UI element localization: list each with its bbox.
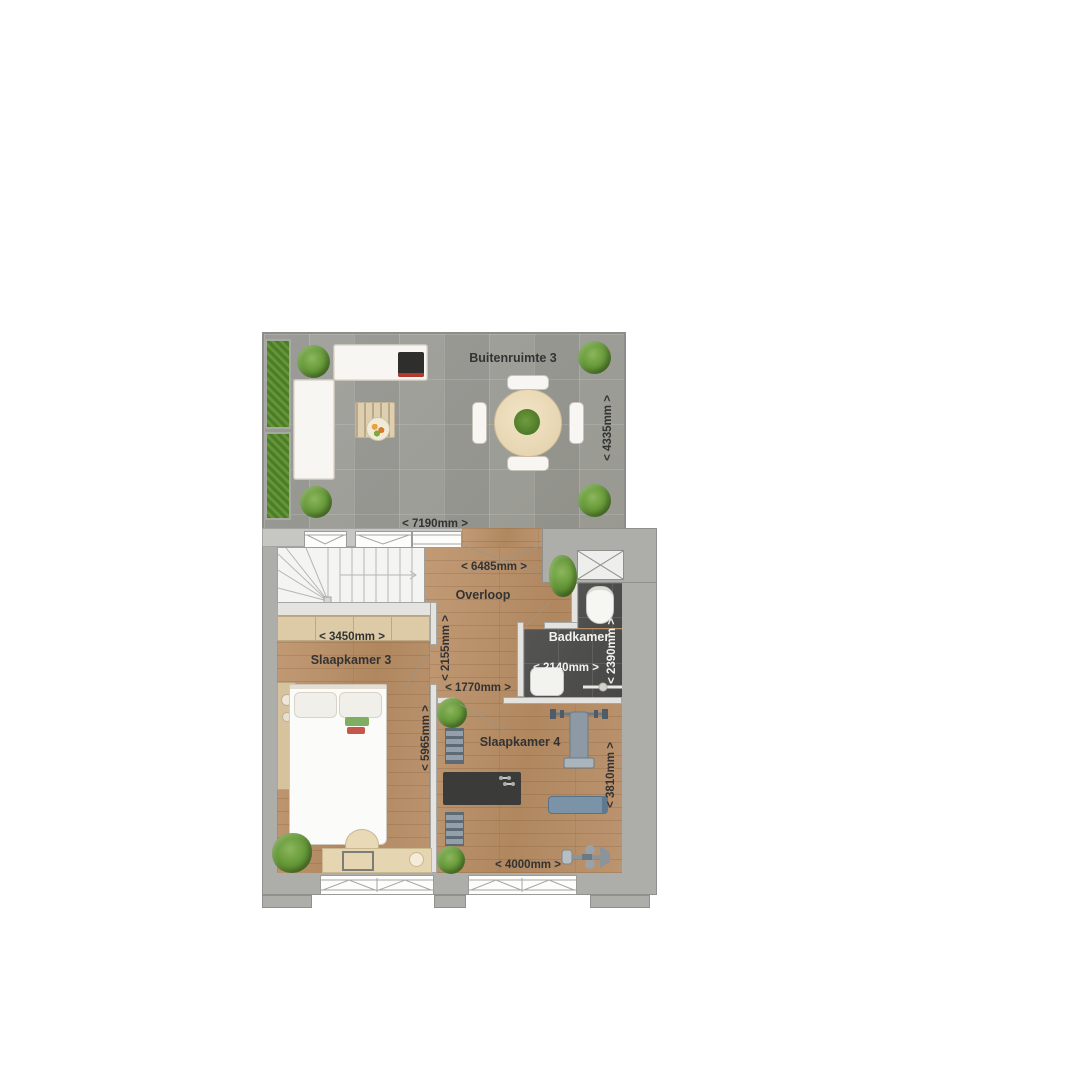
room-label-slaapkamer4: Slaapkamer 4 <box>480 735 561 749</box>
floor-plan: Buitenruimte 3 < 7190mm > < 4335mm > < 6… <box>0 0 1080 1080</box>
dim-overloop-depth: < 2155mm > <box>440 615 452 681</box>
dim-overloop-passage: < 1770mm > <box>445 682 511 694</box>
dim-buitenruimte-depth: < 4335mm > <box>602 395 614 461</box>
dim-overloop-width: < 6485mm > <box>461 561 527 573</box>
room-label-overloop: Overloop <box>456 588 511 602</box>
door-swing-lines <box>0 0 1080 1080</box>
dim-badkamer-width: < 2140mm > <box>533 662 599 674</box>
room-label-buitenruimte: Buitenruimte 3 <box>469 351 557 365</box>
dim-slaapkamer3-width: < 3450mm > <box>319 631 385 643</box>
room-label-badkamer: Badkamer <box>549 630 609 644</box>
dim-slaapkamer4-width: < 4000mm > <box>495 859 561 871</box>
room-label-slaapkamer3: Slaapkamer 3 <box>311 653 392 667</box>
dim-buitenruimte-width: < 7190mm > <box>402 518 468 530</box>
dim-slaapkamer4-depth: < 3810mm > <box>605 742 617 808</box>
dim-slaapkamer3-depth: < 5965mm > <box>420 705 432 771</box>
dim-badkamer-depth: < 2390mm > <box>606 618 618 684</box>
